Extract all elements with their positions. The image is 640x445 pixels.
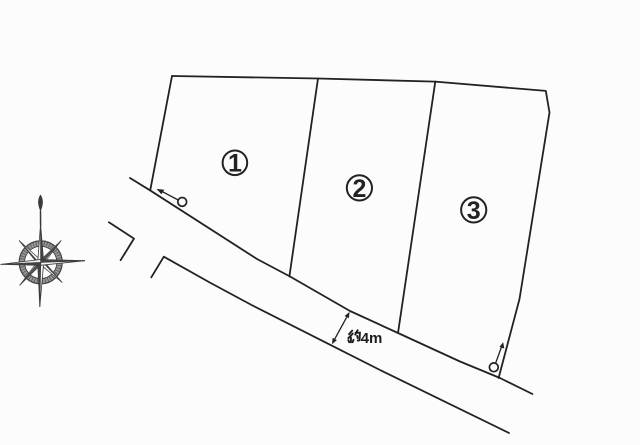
svg-text:2: 2: [352, 175, 366, 203]
svg-text:1: 1: [228, 150, 242, 178]
svg-text:3: 3: [467, 197, 481, 225]
svg-text:4m: 4m: [361, 330, 383, 347]
